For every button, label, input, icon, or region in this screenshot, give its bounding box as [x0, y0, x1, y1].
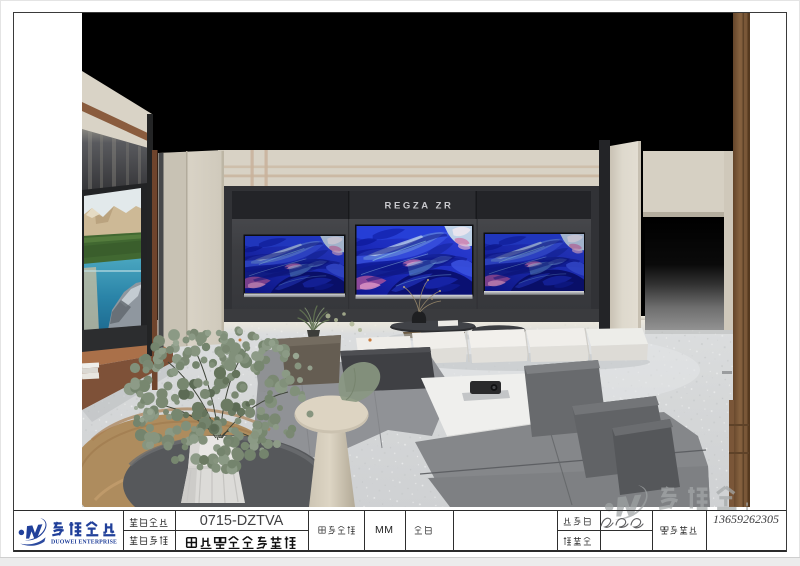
svg-text:REGZA ZR: REGZA ZR	[384, 201, 453, 212]
svg-text:DUOWEI ENTERPRISE: DUOWEI ENTERPRISE	[51, 540, 117, 546]
